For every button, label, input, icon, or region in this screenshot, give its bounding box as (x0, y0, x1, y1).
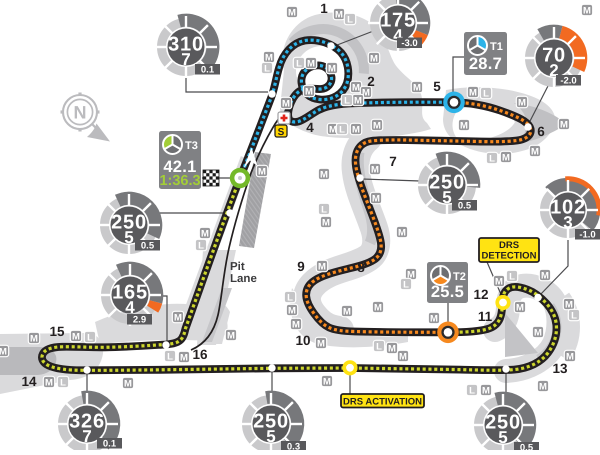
svg-text:5: 5 (433, 79, 441, 94)
svg-text:M: M (323, 376, 331, 387)
svg-text:L: L (509, 271, 515, 282)
svg-text:L: L (376, 341, 382, 352)
svg-text:L: L (339, 124, 345, 135)
svg-text:L: L (296, 58, 302, 69)
svg-text:M: M (322, 217, 330, 228)
svg-text:L: L (469, 385, 475, 396)
svg-text:M: M (288, 305, 296, 316)
svg-text:M: M (328, 63, 336, 74)
svg-text:M: M (460, 120, 468, 131)
svg-text:2: 2 (367, 74, 375, 89)
svg-text:M: M (370, 53, 378, 64)
svg-text:M: M (531, 146, 539, 157)
svg-text:S: S (278, 127, 285, 138)
svg-text:M: M (282, 98, 290, 109)
svg-text:0.3: 0.3 (287, 442, 300, 450)
svg-text:15: 15 (49, 324, 65, 339)
svg-text:0.1: 0.1 (103, 439, 117, 450)
svg-text:L: L (167, 351, 173, 362)
svg-text:T1: T1 (490, 41, 503, 53)
svg-text:L: L (321, 204, 327, 215)
svg-text:L: L (344, 95, 350, 106)
svg-text:M: M (541, 270, 549, 281)
svg-text:L: L (287, 292, 293, 303)
svg-text:L: L (347, 14, 353, 25)
svg-text:M: M (288, 7, 296, 18)
svg-text:25.5: 25.5 (431, 283, 464, 301)
svg-text:M: M (372, 193, 380, 204)
svg-text:0.1: 0.1 (201, 65, 215, 76)
svg-text:7: 7 (389, 154, 397, 169)
svg-text:M: M (0, 346, 7, 357)
svg-text:M: M (583, 5, 591, 16)
svg-text:M: M (307, 58, 315, 69)
svg-text:3: 3 (563, 213, 572, 232)
svg-text:M: M (354, 95, 362, 106)
svg-text:M: M (320, 169, 328, 180)
svg-text:M: M (343, 306, 351, 317)
svg-text:M: M (560, 119, 568, 130)
svg-text:Lane: Lane (230, 273, 257, 285)
svg-text:M: M (388, 343, 396, 354)
svg-text:M: M (374, 302, 382, 313)
svg-text:0.5: 0.5 (520, 443, 534, 450)
svg-text:5: 5 (124, 228, 133, 247)
svg-text:L: L (403, 279, 409, 290)
svg-text:28.7: 28.7 (469, 55, 502, 73)
svg-text:8: 8 (357, 260, 365, 275)
svg-text:1: 1 (320, 1, 328, 16)
svg-text:T2: T2 (453, 271, 466, 283)
svg-text:2.9: 2.9 (133, 315, 146, 326)
svg-text:DETECTION: DETECTION (482, 251, 537, 262)
svg-text:L: L (489, 153, 495, 164)
svg-text:M: M (174, 312, 182, 323)
svg-text:M: M (518, 97, 526, 108)
svg-text:13: 13 (552, 361, 568, 376)
svg-text:7: 7 (181, 50, 190, 69)
svg-text:-3.0: -3.0 (401, 38, 417, 49)
svg-text:DRS: DRS (499, 240, 519, 251)
svg-text:M: M (495, 276, 503, 287)
svg-text:-1.0: -1.0 (579, 230, 595, 241)
svg-text:6: 6 (537, 124, 545, 139)
svg-text:16: 16 (192, 347, 208, 362)
svg-text:M: M (352, 82, 360, 93)
svg-text:9: 9 (297, 259, 305, 274)
svg-text:0.5: 0.5 (141, 241, 155, 252)
svg-text:5: 5 (498, 428, 507, 447)
svg-text:M: M (30, 333, 38, 344)
svg-text:M: M (124, 378, 132, 389)
svg-text:L: L (571, 310, 577, 321)
svg-text:L: L (264, 63, 270, 74)
svg-text:M: M (201, 228, 209, 239)
svg-text:M: M (305, 86, 313, 97)
svg-text:M: M (317, 338, 325, 349)
svg-text:M: M (430, 313, 438, 324)
svg-text:Pit: Pit (230, 261, 245, 273)
svg-text:M: M (399, 351, 407, 362)
svg-text:L: L (483, 88, 489, 99)
svg-text:N: N (74, 103, 87, 123)
svg-text:M: M (413, 82, 421, 93)
svg-text:M: M (373, 120, 381, 131)
svg-text:M: M (45, 377, 53, 388)
svg-text:T3: T3 (185, 140, 198, 152)
svg-text:M: M (534, 327, 542, 338)
svg-text:M: M (292, 319, 300, 330)
svg-text:M: M (352, 124, 360, 135)
svg-text:10: 10 (295, 333, 310, 348)
svg-text:M: M (502, 152, 510, 163)
svg-text:M: M (318, 261, 326, 272)
svg-text:L: L (87, 332, 93, 343)
svg-text:14: 14 (21, 374, 37, 389)
svg-text:M: M (227, 330, 235, 341)
svg-text:M: M (482, 385, 490, 396)
svg-text:M: M (371, 164, 379, 175)
svg-text:M: M (180, 352, 188, 363)
svg-text:5: 5 (266, 427, 275, 446)
svg-text:M: M (335, 9, 343, 20)
svg-text:-2.0: -2.0 (560, 76, 576, 87)
svg-text:12: 12 (473, 287, 488, 302)
svg-text:M: M (539, 381, 547, 392)
svg-text:0.5: 0.5 (458, 201, 472, 212)
svg-text:M: M (469, 87, 477, 98)
svg-text:L: L (60, 377, 66, 388)
svg-text:DRS ACTIVATION: DRS ACTIVATION (343, 397, 422, 408)
svg-text:4: 4 (306, 120, 314, 135)
svg-text:M: M (516, 302, 524, 313)
svg-text:5: 5 (442, 188, 451, 207)
svg-text:L: L (198, 240, 204, 251)
svg-text:7: 7 (82, 427, 91, 446)
svg-text:M: M (398, 227, 406, 238)
svg-text:1:36.3: 1:36.3 (159, 173, 200, 189)
svg-text:11: 11 (478, 309, 493, 324)
svg-text:M: M (72, 331, 80, 342)
svg-text:M: M (258, 166, 266, 177)
